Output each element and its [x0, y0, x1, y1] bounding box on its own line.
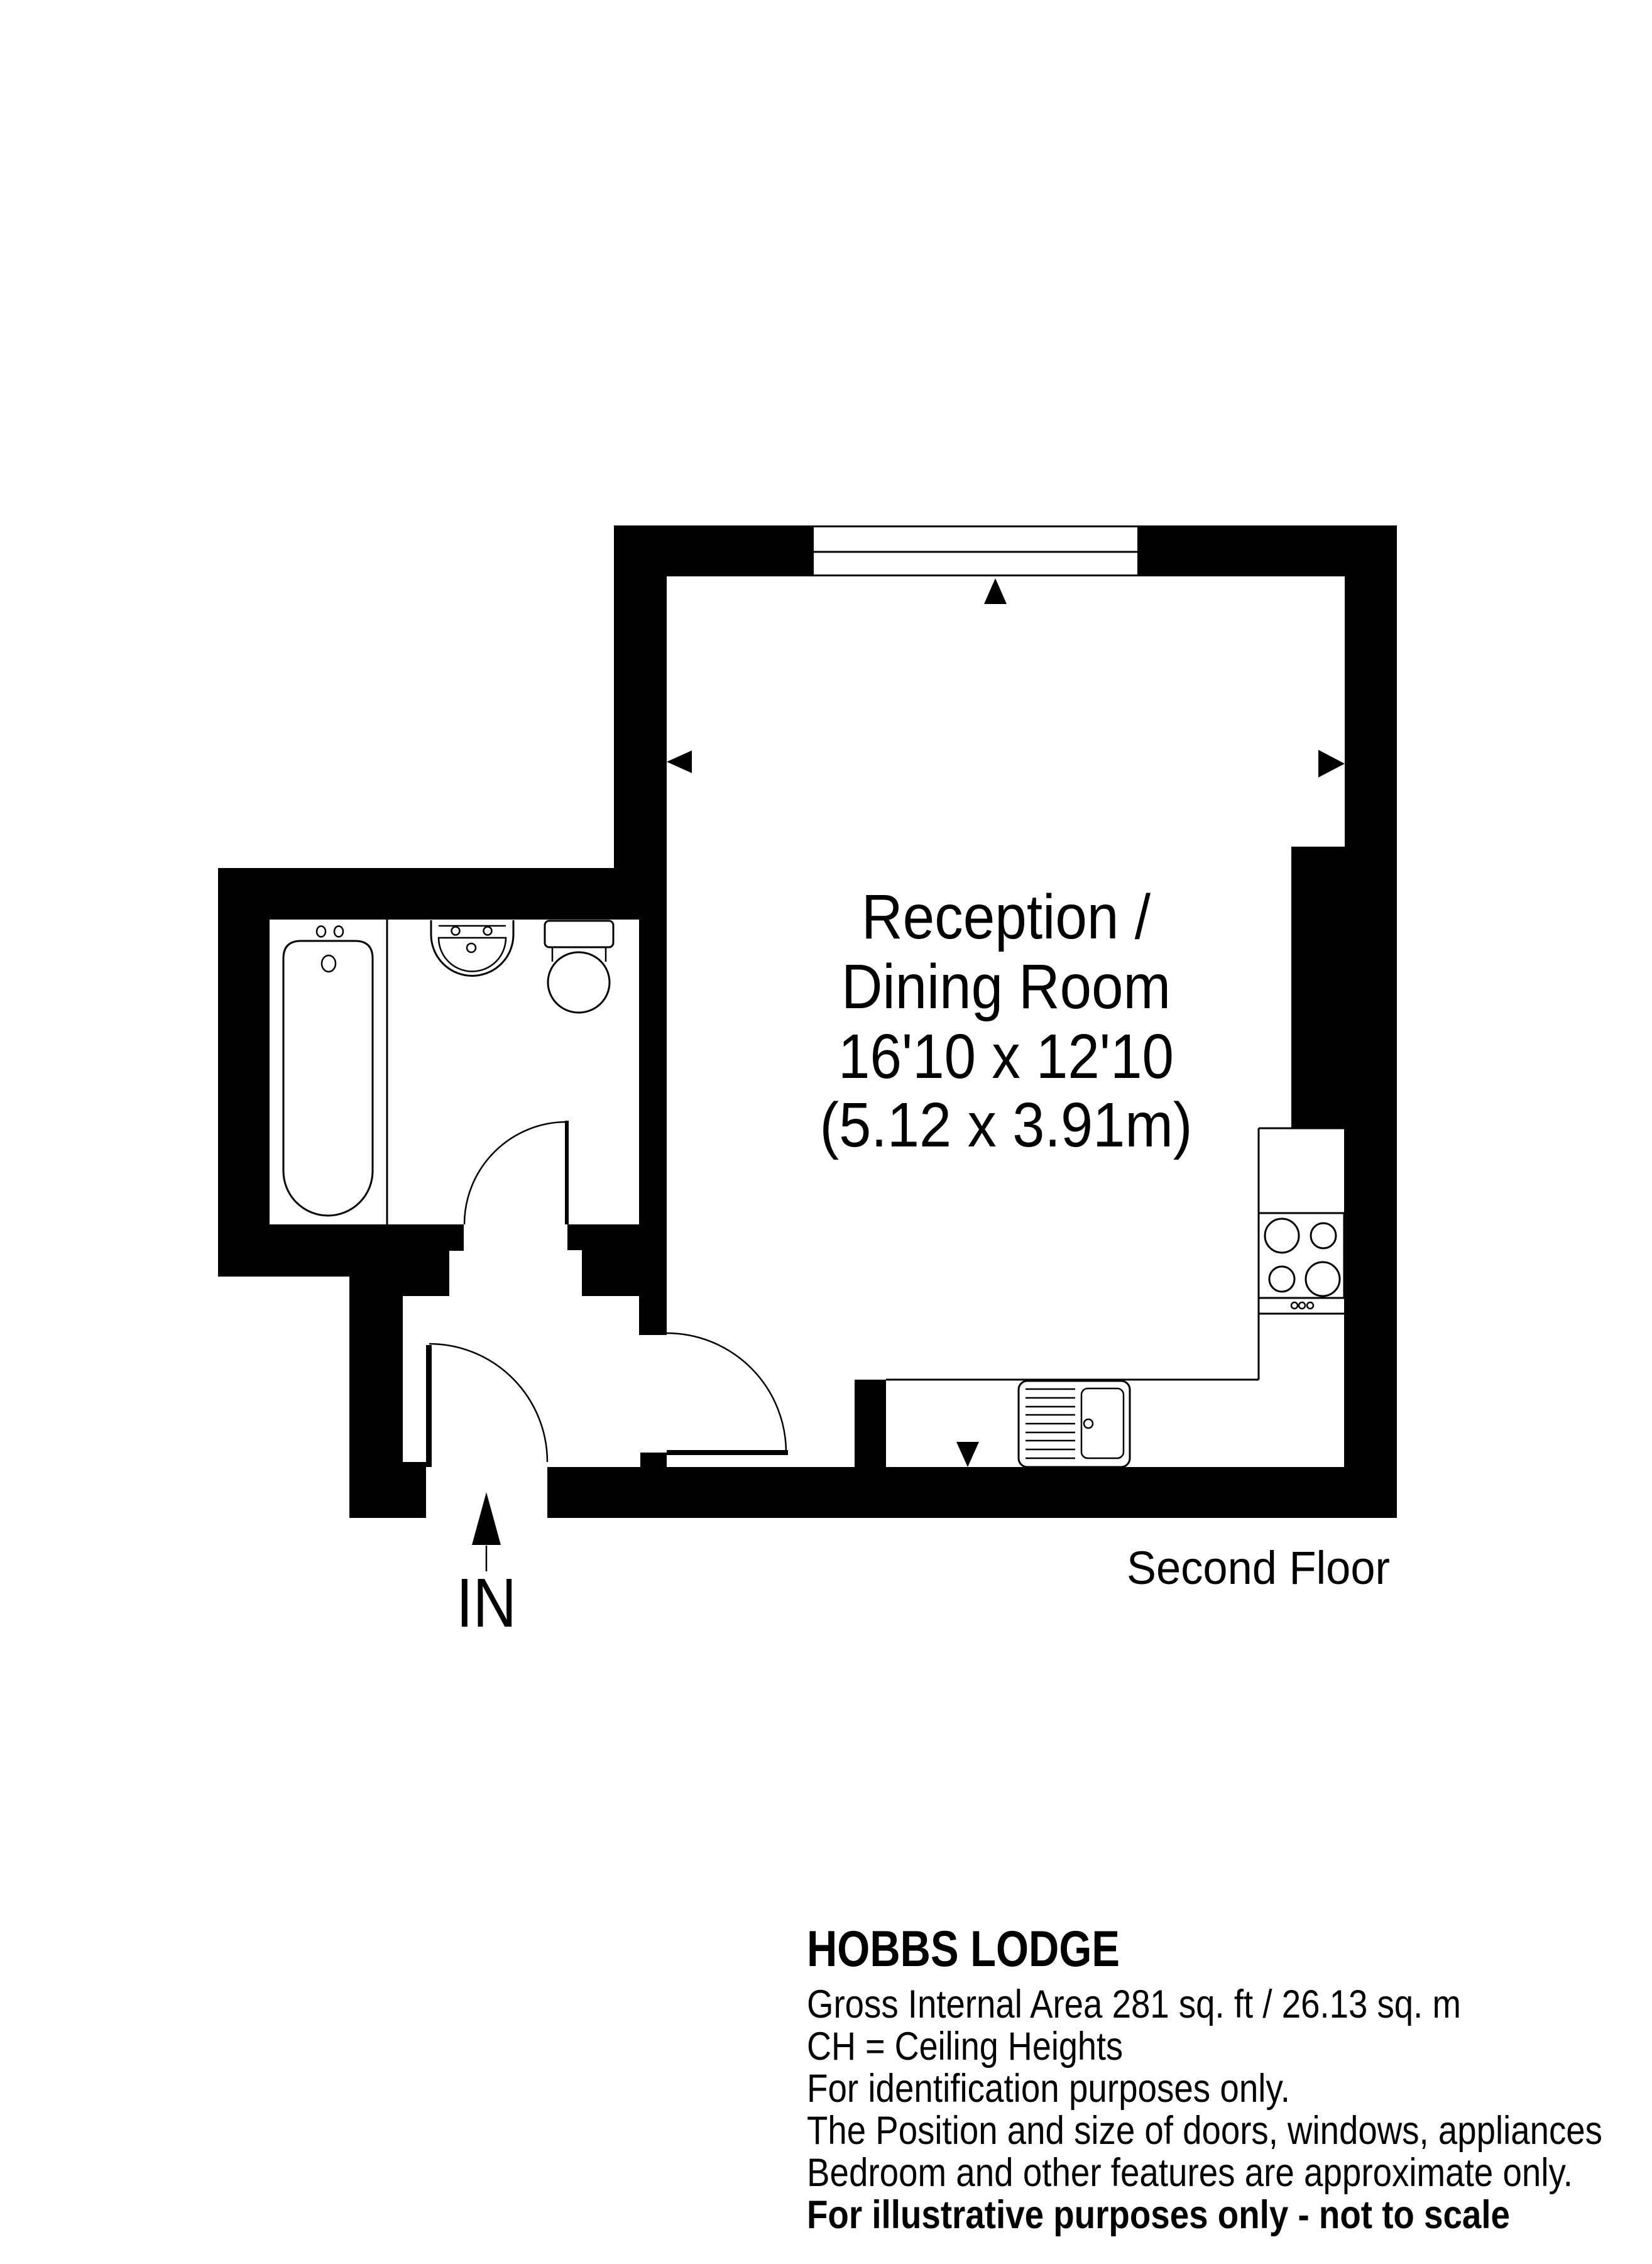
svg-text:Reception /: Reception /: [862, 882, 1151, 952]
svg-text:16'10 x 12'10: 16'10 x 12'10: [838, 1021, 1174, 1092]
svg-text:Bedroom and other features are: Bedroom and other features are approxima…: [807, 2151, 1573, 2195]
svg-text:IN: IN: [456, 1564, 517, 1642]
svg-text:(5.12 x 3.91m): (5.12 x 3.91m): [820, 1090, 1193, 1160]
svg-text:Gross Internal Area 281 sq. ft: Gross Internal Area 281 sq. ft / 26.13 s…: [807, 1982, 1461, 2026]
svg-text:Second Floor: Second Floor: [1127, 1542, 1390, 1594]
svg-text:For identification purposes on: For identification purposes only.: [807, 2067, 1290, 2111]
svg-text:CH = Ceiling Heights: CH = Ceiling Heights: [807, 2025, 1123, 2069]
svg-text:HOBBS LODGE: HOBBS LODGE: [807, 1921, 1120, 1977]
svg-text:Dining Room: Dining Room: [841, 952, 1171, 1022]
svg-text:For illustrative purposes only: For illustrative purposes only - not to …: [807, 2193, 1510, 2237]
svg-text:The Position and size of doors: The Position and size of doors, windows,…: [807, 2109, 1602, 2153]
